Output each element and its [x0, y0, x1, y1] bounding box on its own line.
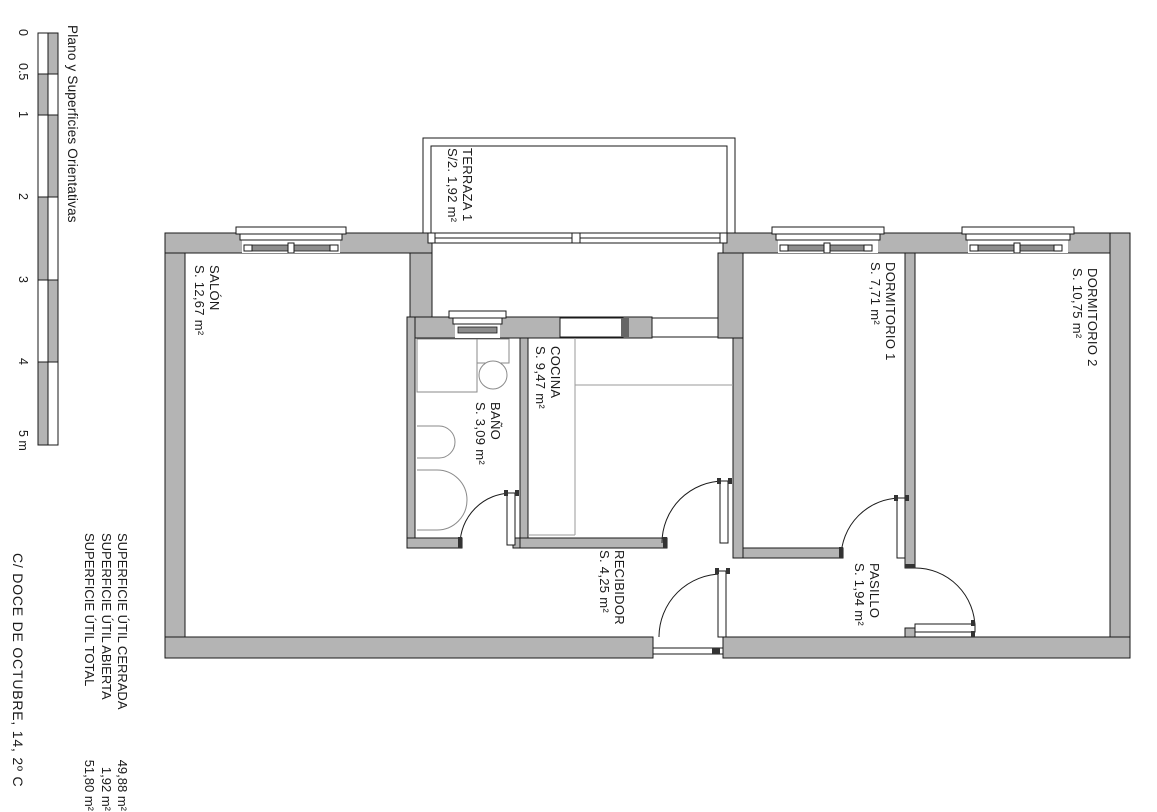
wall-left	[165, 233, 185, 658]
scale-tick-1: 1	[16, 111, 30, 118]
wall-dorm2-door-stub	[905, 628, 915, 637]
room-floors	[185, 146, 1110, 637]
wall-bottom-left	[165, 637, 653, 658]
summary-value: 49,88 m²	[114, 760, 130, 811]
plan-title: Plano y Superficies Orientativas	[65, 25, 80, 223]
wall-bano-left	[407, 317, 415, 548]
wall-dorm1-bottom	[743, 548, 843, 558]
scale-tick-0-5: 0.5	[16, 63, 30, 80]
wall-salon-right	[410, 253, 432, 317]
toilet-tank	[477, 339, 509, 363]
wall-dorm-divider	[905, 253, 915, 568]
summary-value: 51,80 m²	[81, 760, 97, 811]
room-recibidor	[407, 548, 733, 637]
door-leaf	[507, 493, 515, 545]
floor-plan-page: 0 0.5 1 2 3 4 5 m	[0, 0, 1157, 812]
window-salon	[236, 226, 346, 253]
room-label-salon: SALÓN S. 12,67 m²	[192, 265, 222, 336]
door-leaf	[720, 481, 728, 543]
room-label-dormitorio2: DORMITORIO 2 S. 10,75 m²	[1070, 268, 1100, 367]
room-label-dormitorio1: DORMITORIO 1 S. 7,71 m²	[868, 262, 898, 361]
wall-bottom-right	[723, 637, 1130, 658]
terraza-glazing	[428, 233, 727, 243]
room-name: COCINA	[548, 346, 563, 409]
window-bano	[449, 311, 506, 338]
scale-tick-0: 0	[16, 29, 30, 36]
scale-tick-5m: 5 m	[16, 430, 30, 451]
room-name: BAÑO	[488, 402, 503, 465]
scale-bar: 0 0.5 1 2 3 4 5 m	[16, 29, 58, 451]
door-leaf	[915, 624, 975, 632]
wall-cocina-left	[520, 338, 528, 548]
room-name: PASILLO	[867, 563, 882, 626]
window-dormitorio1	[772, 226, 884, 253]
property-address: C/ DOCE DE OCTUBRE, 14, 2º C	[10, 553, 26, 787]
window-dormitorio2	[962, 226, 1074, 253]
room-area: S. 10,75 m²	[1070, 268, 1085, 367]
room-label-terraza1: TERRAZA 1 S/2. 1,92 m²	[445, 148, 475, 222]
room-name: DORMITORIO 2	[1085, 268, 1100, 367]
scale-tick-4: 4	[16, 358, 30, 365]
summary-row-total: SUPERFICIE ÚTIL TOTAL 51,80 m²	[81, 533, 97, 811]
washbasin-counter	[417, 339, 477, 392]
surface-summary: SUPERFICIE ÚTIL CERRADA 49,88 m² SUPERFI…	[81, 533, 130, 811]
window-sill	[772, 227, 884, 234]
room-name: RECIBIDOR	[612, 550, 627, 625]
window-sill	[962, 227, 1074, 234]
room-name: DORMITORIO 1	[883, 262, 898, 361]
room-area: S. 9,47 m²	[533, 346, 548, 409]
scale-tick-3: 3	[16, 276, 30, 283]
door-leaf	[718, 571, 726, 637]
room-terraza	[431, 146, 727, 233]
summary-value: 1,92 m²	[97, 767, 113, 811]
toilet-bowl	[479, 361, 507, 389]
room-label-cocina: COCINA S. 9,47 m²	[533, 346, 563, 409]
summary-label: SUPERFICIE ÚTIL CERRADA	[114, 533, 130, 710]
summary-label: SUPERFICIE ÚTIL TOTAL	[81, 533, 97, 686]
room-area: S. 3,09 m²	[473, 402, 488, 465]
window-sill	[449, 311, 506, 318]
door-leaf	[897, 498, 905, 558]
room-area: S. 4,25 m²	[597, 550, 612, 625]
room-patio	[432, 253, 718, 317]
window-sill	[236, 227, 346, 234]
room-name: TERRAZA 1	[460, 148, 475, 222]
room-area: S. 7,71 m²	[868, 262, 883, 361]
room-area: S. 1,94 m²	[852, 563, 867, 626]
wall-bano-bottom-l	[407, 538, 462, 548]
wall-cocina-right	[733, 338, 743, 558]
summary-label: SUPERFICIE ÚTIL ABIERTA	[97, 533, 113, 700]
room-label-recibidor: RECIBIDOR S. 4,25 m²	[597, 550, 627, 625]
bidet	[417, 426, 455, 458]
summary-row-abierta: SUPERFICIE ÚTIL ABIERTA 1,92 m²	[97, 533, 113, 811]
opening-patio-cocina	[652, 318, 718, 337]
wall-right	[1110, 233, 1130, 658]
wall-patio-pillar	[718, 253, 743, 338]
floor-plan-svg: 0 0.5 1 2 3 4 5 m	[0, 0, 1157, 812]
room-name: SALÓN	[207, 265, 222, 336]
scale-tick-2: 2	[16, 193, 30, 200]
room-label-pasillo: PASILLO S. 1,94 m²	[852, 563, 882, 626]
room-label-bano: BAÑO S. 3,09 m²	[473, 402, 503, 465]
room-area: S. 12,67 m²	[192, 265, 207, 336]
wall-cocina-bottom	[520, 538, 667, 548]
summary-row-cerrada: SUPERFICIE ÚTIL CERRADA 49,88 m²	[114, 533, 130, 811]
room-area: S/2. 1,92 m²	[445, 148, 460, 222]
window-cocina	[560, 318, 629, 337]
window-glass	[458, 327, 497, 333]
